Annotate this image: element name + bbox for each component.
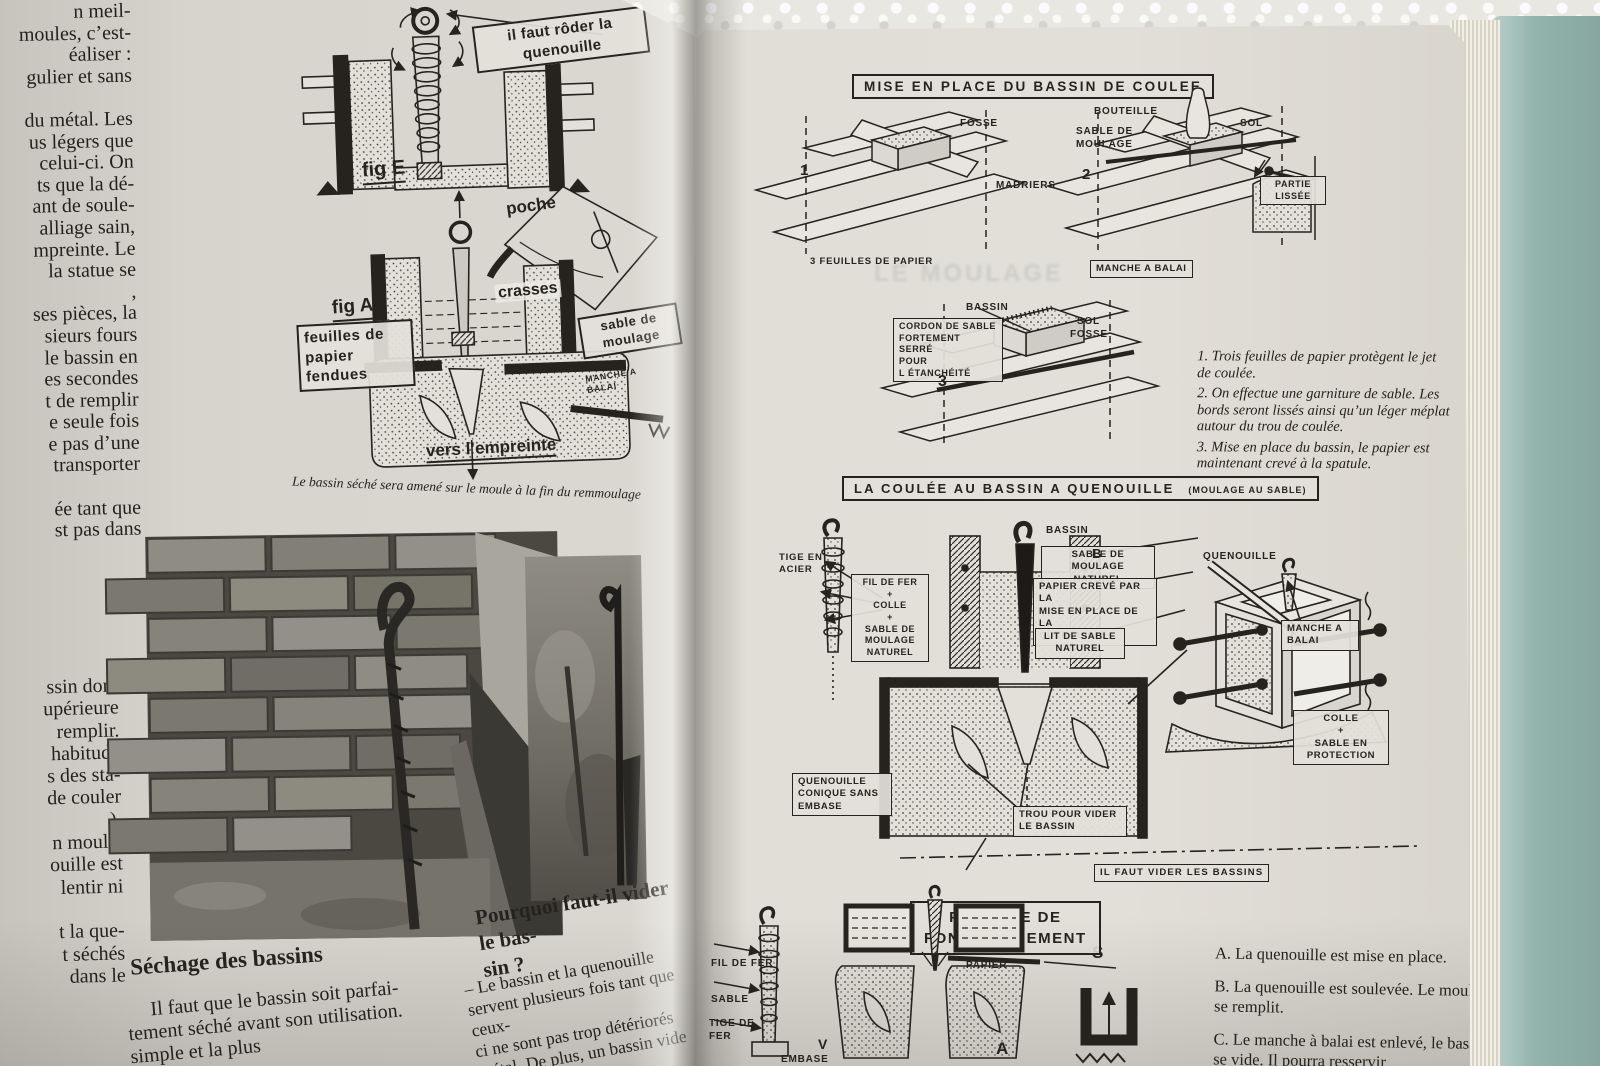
callout-quenouille-conique: QUENOUILLE CONIQUE SANS EMBASE <box>792 773 892 816</box>
fig-e-caption: fig E <box>361 157 406 186</box>
callout-colle-sable: COLLE + SABLE EN PROTECTION <box>1293 710 1389 765</box>
book-cover-edge <box>1492 16 1600 1066</box>
label-fosse-1: FOSSE <box>960 118 998 131</box>
callout-fil-de-fer: FIL DE FER + COLLE + SABLE DE MOULAGE NA… <box>851 574 929 662</box>
label-tige-de-fer: TIGE DE FER <box>709 1018 755 1043</box>
callout-cordon-sable: CORDON DE SABLE FORTEMENT SERRÉ POUR L É… <box>893 318 1003 382</box>
num-fig-1: 1 <box>800 162 809 181</box>
callout-trou-vider: TROU POUR VIDER LE BASSIN <box>1013 806 1127 837</box>
heading-sechage: Séchage des bassins <box>129 941 323 980</box>
book-photo-scene: n meil- moules, c’est- éaliser : gulier … <box>0 0 1600 1066</box>
label-sable-2: SABLE <box>711 994 749 1007</box>
left-column-bottom: ssin dont upérieure remplir. habitude s … <box>0 674 126 989</box>
label-papier-2: PAPIER <box>966 960 1007 973</box>
callout-manche-balai-1: MANCHE A BALAI <box>1090 260 1193 278</box>
title-coulee-paren: (MOULAGE AU SABLE) <box>1188 485 1306 495</box>
letter-b: B <box>1092 546 1102 562</box>
fig-a-caption: fig A <box>331 295 374 323</box>
photo-dark-tools <box>525 555 647 901</box>
callout-il-faut-vider: IL FAUT VIDER LES BASSINS <box>1094 864 1269 882</box>
num-fig-2: 2 <box>1082 166 1091 185</box>
label-fil-de-fer-2: FIL DE FER <box>711 958 773 971</box>
title-coulee-quenouille: LA COULÉE AU BASSIN A QUENOUILLE (MOULAG… <box>842 476 1319 501</box>
label-bouteille: BOUTEILLE <box>1094 106 1158 119</box>
label-bassin-3: BASSIN <box>966 302 1009 315</box>
left-column-top: n meil- moules, c’est- éaliser : gulier … <box>0 1 142 544</box>
title-coulee-main: LA COULÉE AU BASSIN A QUENOUILLE <box>854 481 1175 496</box>
label-feuilles-papier: 3 FEUILLES DE PAPIER <box>810 256 933 268</box>
step-3: 3. Mise en place du bassin, le papier es… <box>1197 439 1497 474</box>
label-bassin-4: BASSIN <box>1046 525 1089 538</box>
photo-brick-wall-quenouille <box>145 531 563 941</box>
label-fosse-2: FOSSE <box>1070 329 1108 342</box>
callout-manche-balai-2: MANCHE A BALAI <box>1281 620 1359 651</box>
num-fig-3: 3 <box>938 372 948 392</box>
label-tige-en-acier: TIGE EN ACIER <box>779 552 823 576</box>
letter-v: V <box>818 1036 828 1054</box>
label-sol-1: SOL <box>1240 118 1263 131</box>
steps-caption: 1. Trois feuilles de papier protègent le… <box>1197 348 1498 477</box>
step-2: 2. On effectue une garniture de sable. L… <box>1197 385 1497 436</box>
letter-a: A <box>996 1038 1009 1059</box>
step-1: 1. Trois feuilles de papier protègent le… <box>1197 348 1497 383</box>
callout-partie-lissee: PARTIE LISSÉE <box>1260 176 1326 205</box>
label-embase: EMBASE <box>781 1054 829 1066</box>
label-sol-2: SOL <box>1077 316 1100 329</box>
label-quenouille: QUENOUILLE <box>1203 551 1277 564</box>
body-sechage: Il faut que le bassin soit parfai- temen… <box>126 970 483 1066</box>
feuilles-fendues-callout: feuilles de papier fendues <box>296 319 415 391</box>
label-sable-moulage-2: SABLE DE MOULAGE <box>1076 126 1133 151</box>
callout-lit-sable: LIT DE SABLE NATUREL <box>1035 628 1125 659</box>
label-madriers: MADRIERS <box>996 180 1056 193</box>
